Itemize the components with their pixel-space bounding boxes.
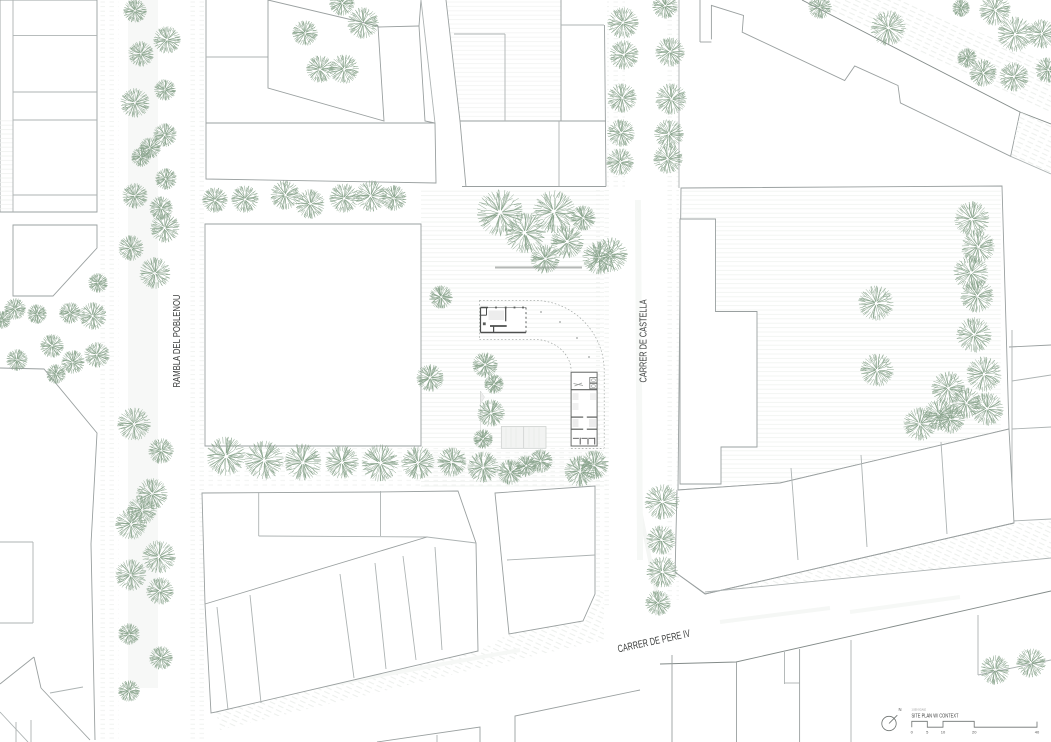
svg-text:20: 20 [972,730,977,735]
svg-text:SITE PLAN W/ CONTEXT: SITE PLAN W/ CONTEXT [912,714,959,720]
svg-text:40: 40 [1035,730,1040,735]
svg-text:CARRER DE CASTELLA: CARRER DE CASTELLA [638,300,650,383]
svg-text:N: N [899,707,902,712]
svg-text:1:500 SCALE: 1:500 SCALE [912,707,927,711]
svg-text:10: 10 [941,730,946,735]
svg-text:RAMBLA DEL POBLENOU: RAMBLA DEL POBLENOU [171,295,183,388]
